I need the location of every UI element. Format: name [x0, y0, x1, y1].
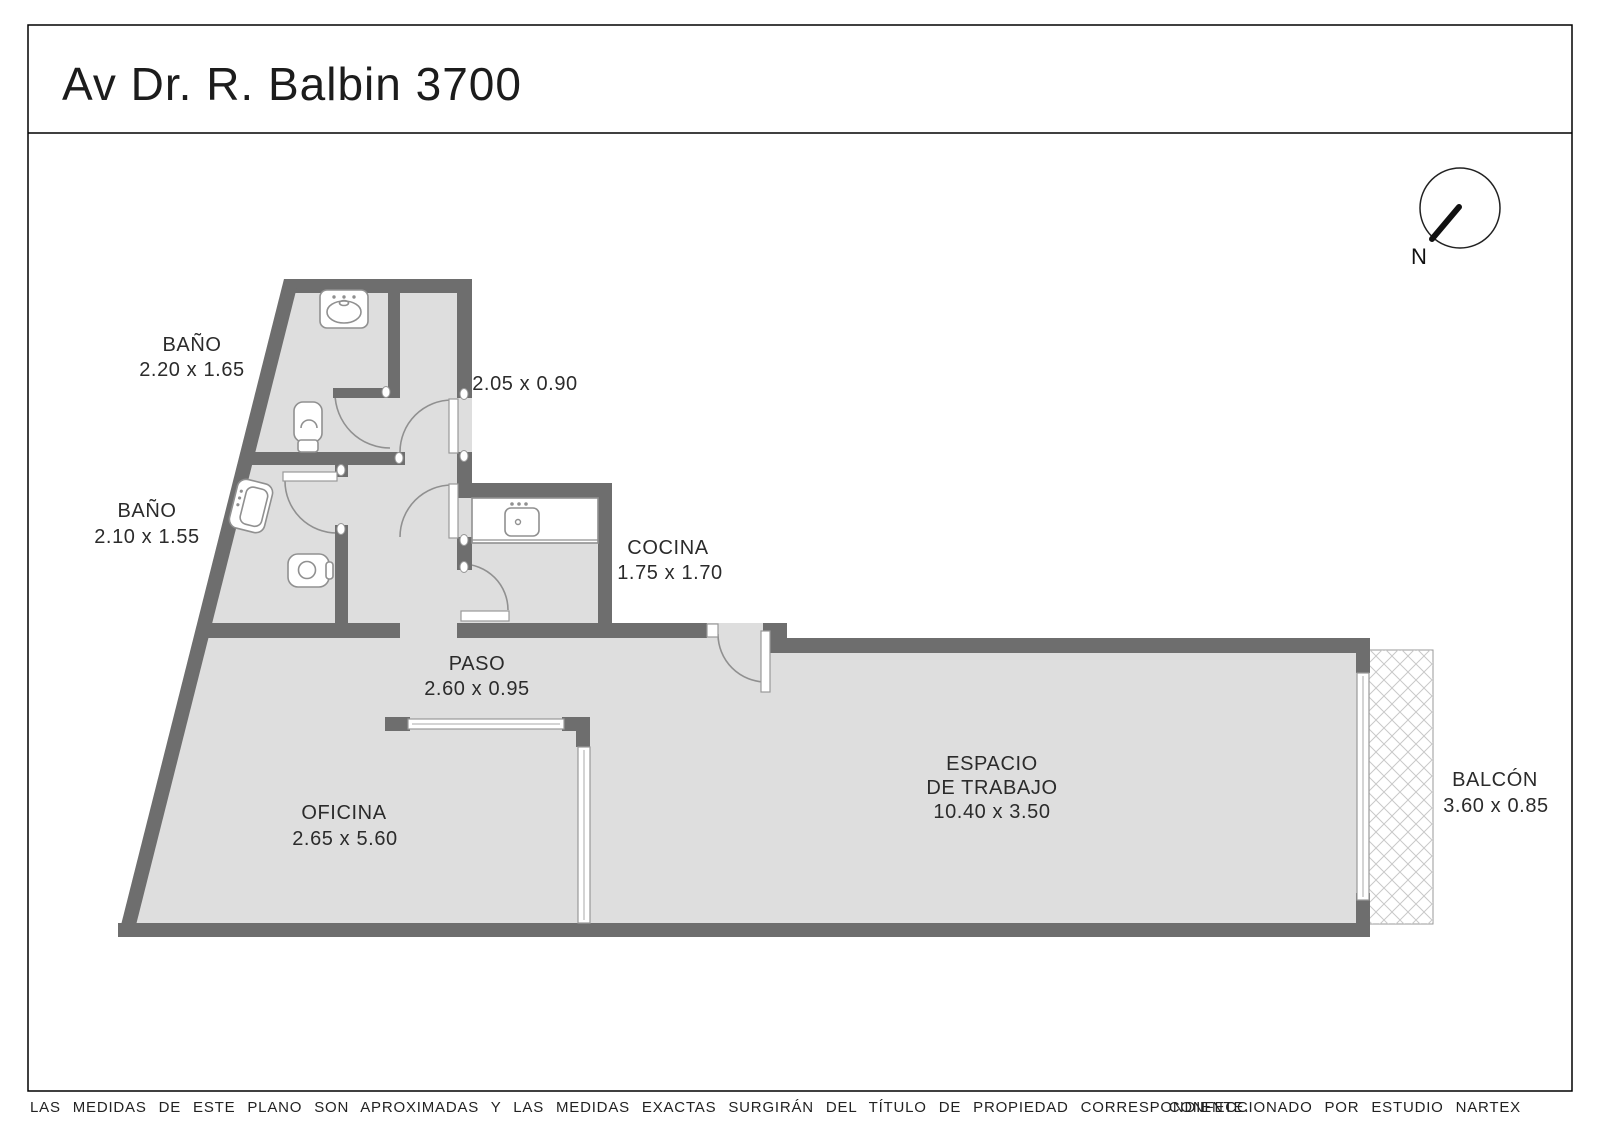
wall-top: [284, 279, 472, 293]
wall-vestibule-south: [250, 452, 405, 465]
glass-post-right: [562, 717, 590, 731]
label-oficina-dims: 2.65 x 5.60: [292, 828, 398, 850]
cocina-door-leaf: [461, 611, 509, 621]
label-bano1-dims: 2.20 x 1.65: [139, 359, 245, 381]
wall-bano1-east: [388, 293, 400, 398]
bano2-door-leaf: [283, 472, 337, 481]
kitchen-counter: [472, 498, 598, 543]
label-balcon-dims: 3.60 x 0.85: [1443, 795, 1549, 817]
glass-post-corner: [576, 731, 590, 747]
wall-paso-north-east: [457, 623, 707, 638]
label-paso-name: PASO: [449, 653, 506, 675]
label-oficina-name: OFICINA: [301, 802, 386, 824]
wall-espacio-north: [787, 638, 1356, 653]
floor-plan-page: Av Dr. R. Balbin 3700 N: [0, 0, 1600, 1130]
espacio-door-jamb: [707, 624, 718, 637]
page-title: Av Dr. R. Balbin 3700: [62, 58, 522, 110]
toilet-icon: [294, 402, 322, 452]
label-pasillo-dims: 2.05 x 0.90: [472, 373, 578, 395]
label-paso-dims: 2.60 x 0.95: [424, 678, 530, 700]
north-needle-icon: [1432, 207, 1459, 239]
wall-bottom: [118, 923, 1370, 937]
compass: N: [1411, 168, 1500, 269]
floor-plan-canvas: Av Dr. R. Balbin 3700 N: [0, 0, 1600, 1130]
wall-bano1-partition: [333, 388, 390, 398]
label-espacio-name-2: DE TRABAJO: [926, 777, 1057, 799]
bidet-icon: [288, 554, 333, 587]
footer-credit: CONFECCIONADO POR ESTUDIO NARTEX: [1169, 1099, 1521, 1116]
glass-post-left: [385, 717, 410, 731]
wall-right-post-top: [1356, 638, 1370, 673]
label-bano1-name: BAÑO: [162, 332, 221, 356]
balcony: [1368, 650, 1433, 924]
wall-paso-north-west: [200, 623, 400, 638]
label-balcon-name: BALCÓN: [1452, 768, 1538, 791]
espacio-door-leaf: [761, 631, 770, 692]
entrance-door-leaf: [449, 399, 458, 453]
footer-disclaimer: LAS MEDIDAS DE ESTE PLANO SON APROXIMADA…: [30, 1099, 1249, 1116]
footer: LAS MEDIDAS DE ESTE PLANO SON APROXIMADA…: [30, 1099, 1521, 1116]
wall-kitchen-top: [457, 483, 612, 498]
wall-bano2-east: [335, 525, 348, 638]
label-bano2-name: BAÑO: [117, 498, 176, 522]
north-label: N: [1411, 244, 1427, 269]
label-espacio-name-1: ESPACIO: [946, 753, 1038, 775]
balcony-hatch: [1368, 650, 1433, 924]
label-cocina-name: COCINA: [627, 537, 708, 559]
label-espacio-dims: 10.40 x 3.50: [933, 801, 1050, 823]
wall-spine-upper: [457, 279, 472, 398]
sink-icon: [320, 290, 368, 328]
label-bano2-dims: 2.10 x 1.55: [94, 526, 200, 548]
label-cocina-dims: 1.75 x 1.70: [617, 562, 723, 584]
wall-kitchen-right: [598, 483, 612, 638]
hall-door-leaf: [449, 484, 458, 538]
